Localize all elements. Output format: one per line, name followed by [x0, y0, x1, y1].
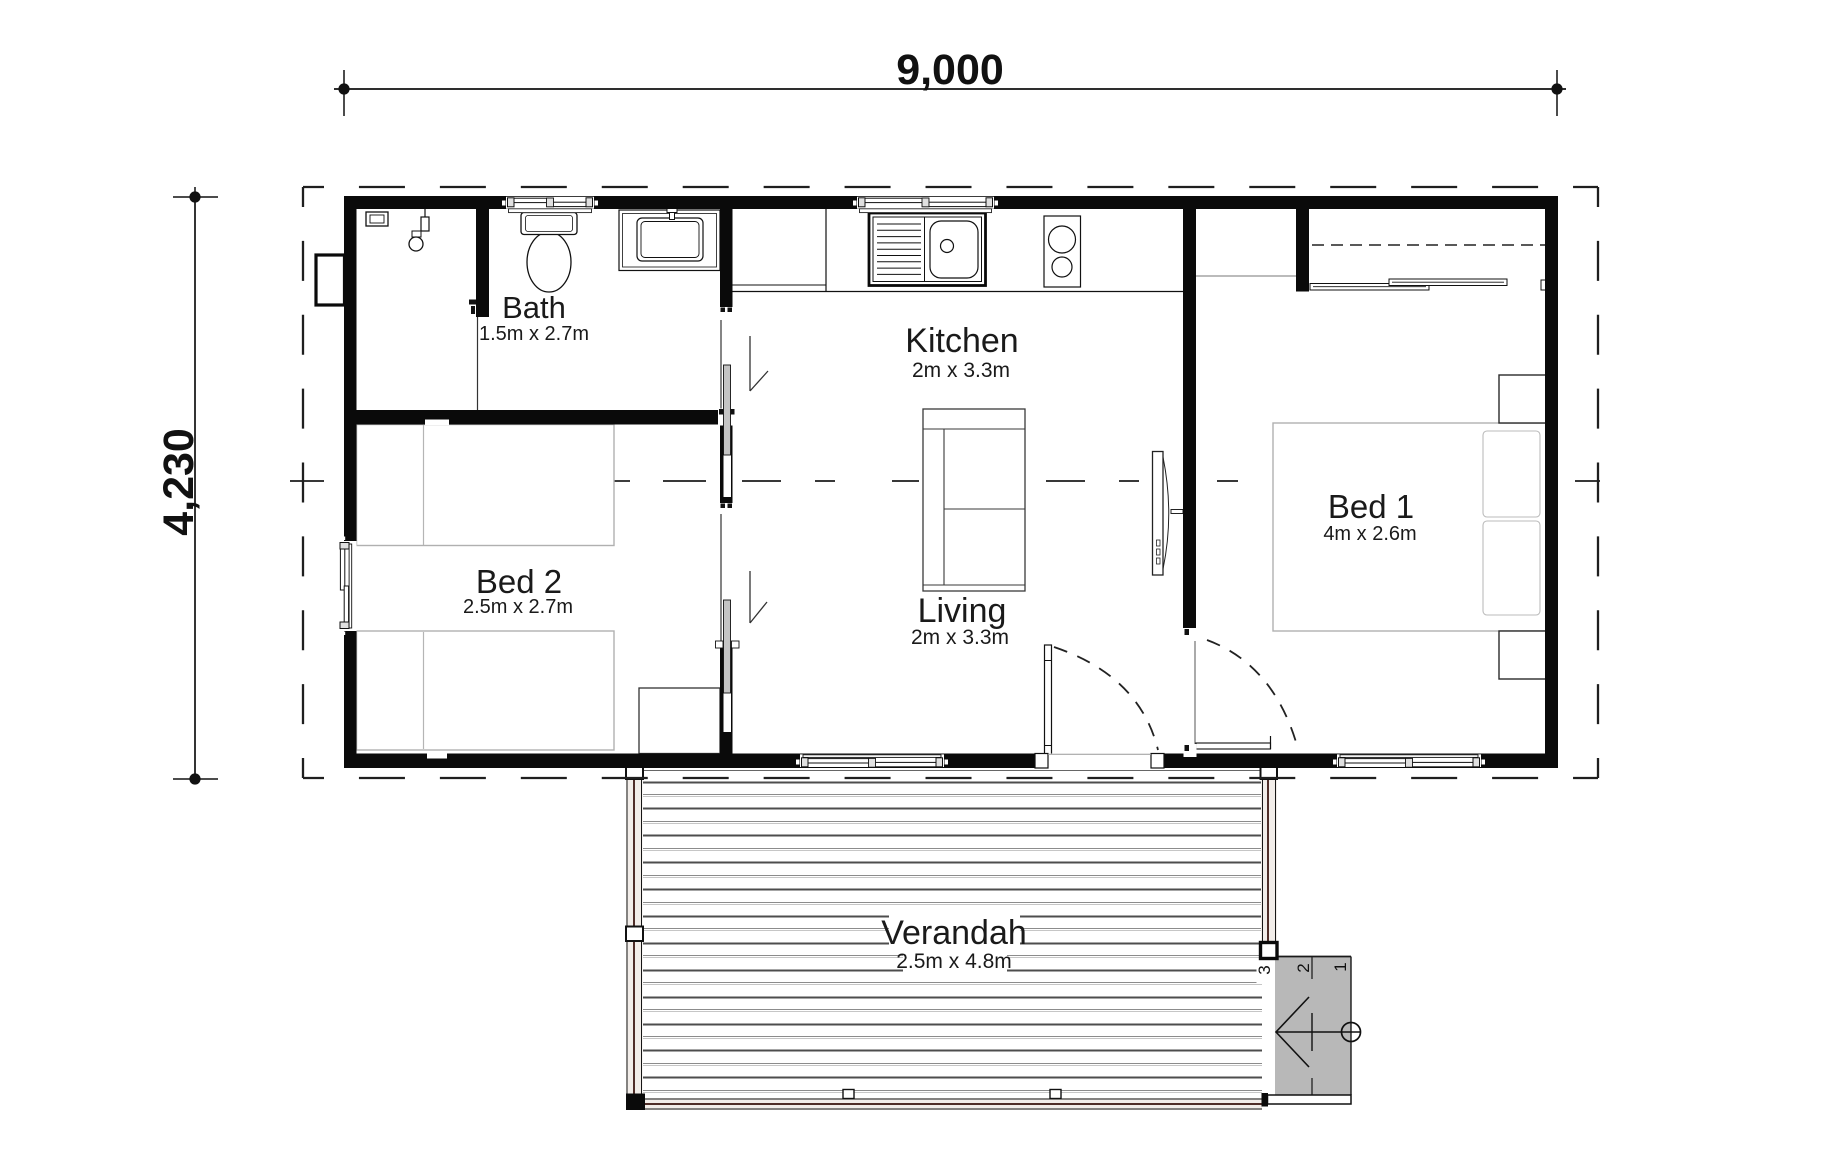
svg-text:2.5m x 4.8m: 2.5m x 4.8m [896, 950, 1012, 973]
svg-text:9,000: 9,000 [896, 46, 1004, 94]
svg-text:1.5m x 2.7m: 1.5m x 2.7m [479, 323, 589, 345]
svg-text:Bath: Bath [502, 290, 566, 325]
svg-text:2m x 3.3m: 2m x 3.3m [911, 626, 1009, 649]
svg-text:Bed 1: Bed 1 [1328, 488, 1414, 525]
svg-text:3: 3 [1255, 965, 1274, 974]
svg-text:2.5m x 2.7m: 2.5m x 2.7m [463, 596, 573, 618]
svg-text:Living: Living [918, 592, 1007, 630]
svg-text:Verandah: Verandah [881, 914, 1027, 952]
svg-text:2: 2 [1294, 963, 1313, 972]
svg-text:1: 1 [1331, 962, 1350, 971]
svg-text:2m x 3.3m: 2m x 3.3m [912, 359, 1010, 382]
svg-text:4,230: 4,230 [155, 428, 203, 536]
svg-text:Bed 2: Bed 2 [476, 563, 562, 600]
svg-text:4m x 2.6m: 4m x 2.6m [1323, 523, 1416, 545]
svg-text:Kitchen: Kitchen [905, 322, 1018, 360]
